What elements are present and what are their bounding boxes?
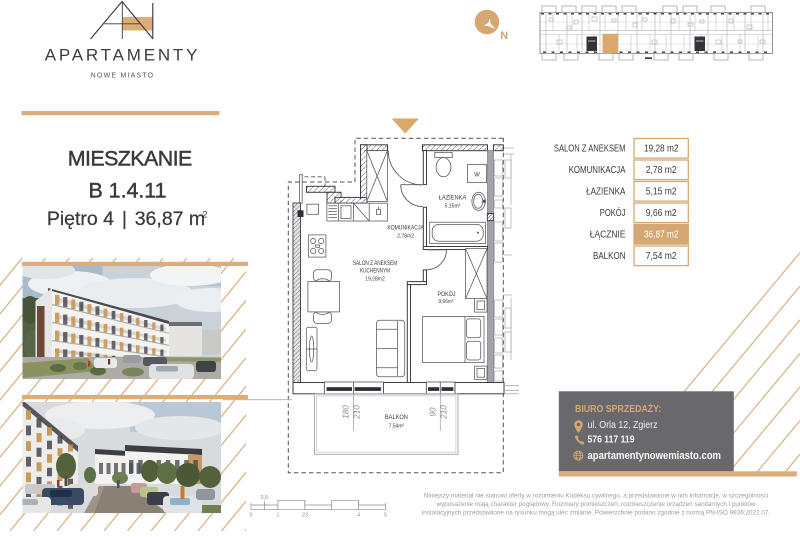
svg-text:ŁAZIENKA: ŁAZIENKA [439, 196, 467, 202]
svg-text:BALKON: BALKON [593, 251, 626, 262]
svg-text:180: 180 [342, 405, 351, 419]
svg-text:3: 3 [305, 513, 308, 519]
svg-text:576 117 119: 576 117 119 [588, 435, 635, 446]
svg-text:0,5: 0,5 [261, 495, 269, 501]
svg-text:210: 210 [353, 405, 362, 420]
svg-text:19,28 m2: 19,28 m2 [644, 144, 679, 155]
svg-text:KOMUNIKACJA: KOMUNIKACJA [387, 226, 424, 232]
svg-text:N: N [500, 30, 508, 42]
svg-text:5,15 m2: 5,15 m2 [646, 187, 677, 198]
svg-text:KOMUNIKACJA: KOMUNIKACJA [569, 165, 626, 176]
svg-text:5,15m²: 5,15m² [445, 203, 461, 209]
svg-text:BIURO SPRZEDAŻY:: BIURO SPRZEDAŻY: [575, 404, 661, 415]
svg-text:wyposażenie mają charakter pog: wyposażenie mają charakter poglądowy. Ro… [436, 501, 756, 508]
svg-text:36,87 m2: 36,87 m2 [644, 230, 679, 241]
svg-text:2,78 m2: 2,78 m2 [646, 165, 677, 176]
svg-text:Piętro 4 | 36,87 m: Piętro 4 | 36,87 m [47, 208, 205, 230]
svg-text:NOWE MIASTO: NOWE MIASTO [91, 73, 155, 80]
svg-text:0: 0 [250, 513, 253, 519]
svg-text:KUCHENNYM: KUCHENNYM [360, 269, 390, 275]
svg-text:SALON Z ANEKSEM: SALON Z ANEKSEM [554, 144, 626, 155]
svg-text:SALON Z ANEKSEM: SALON Z ANEKSEM [353, 261, 398, 267]
svg-text:ul. Orla 12, Zgierz: ul. Orla 12, Zgierz [588, 420, 658, 431]
svg-text:4: 4 [357, 513, 360, 519]
svg-text:ŁAZIENKA: ŁAZIENKA [586, 187, 626, 198]
svg-text:ŁĄCZNIE: ŁĄCZNIE [590, 230, 626, 241]
svg-text:9,66m²: 9,66m² [439, 299, 454, 305]
svg-text:B 1.4.11: B 1.4.11 [89, 178, 167, 202]
svg-text:90: 90 [429, 407, 438, 417]
svg-text:BALKON: BALKON [385, 415, 408, 421]
svg-text:2: 2 [202, 210, 207, 221]
svg-text:Niniejszy materiał nie stanowi: Niniejszy materiał nie stanowi oferty w … [424, 493, 768, 500]
svg-text:7,54 m2: 7,54 m2 [646, 251, 677, 262]
svg-text:7,54m²: 7,54m² [389, 423, 405, 429]
svg-text:POKÓJ: POKÓJ [600, 208, 626, 219]
svg-text:2,78m2: 2,78m2 [397, 233, 414, 239]
svg-text:APARTAMENTY: APARTAMENTY [45, 46, 201, 65]
svg-text:MIESZKANIE: MIESZKANIE [68, 146, 193, 170]
svg-text:9,66 m2: 9,66 m2 [646, 208, 677, 219]
svg-text:W: W [474, 172, 480, 178]
svg-text:1: 1 [276, 513, 279, 519]
svg-text:210: 210 [440, 405, 449, 420]
svg-text:POKÓJ: POKÓJ [438, 291, 456, 298]
svg-text:apartamentynowemiasto.com: apartamentynowemiasto.com [588, 450, 722, 462]
svg-text:instalacyjnych przedstawione n: instalacyjnych przedstawione na rysunku … [422, 509, 771, 516]
svg-text:5: 5 [384, 513, 387, 519]
svg-text:19,28m2: 19,28m2 [365, 276, 385, 282]
